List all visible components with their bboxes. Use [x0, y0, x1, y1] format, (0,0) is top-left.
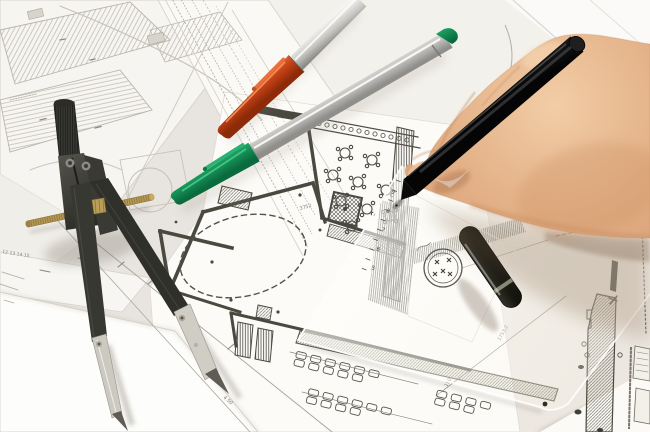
ruler-hole: [543, 402, 548, 407]
photo-canvas: 585 4.50 1753.2 150 3752 12 13 14 15: [0, 0, 650, 432]
compass-handle-top: [54, 99, 74, 107]
photo-architect-drawing: 585 4.50 1753.2 150 3752 12 13 14 15: [0, 0, 650, 432]
